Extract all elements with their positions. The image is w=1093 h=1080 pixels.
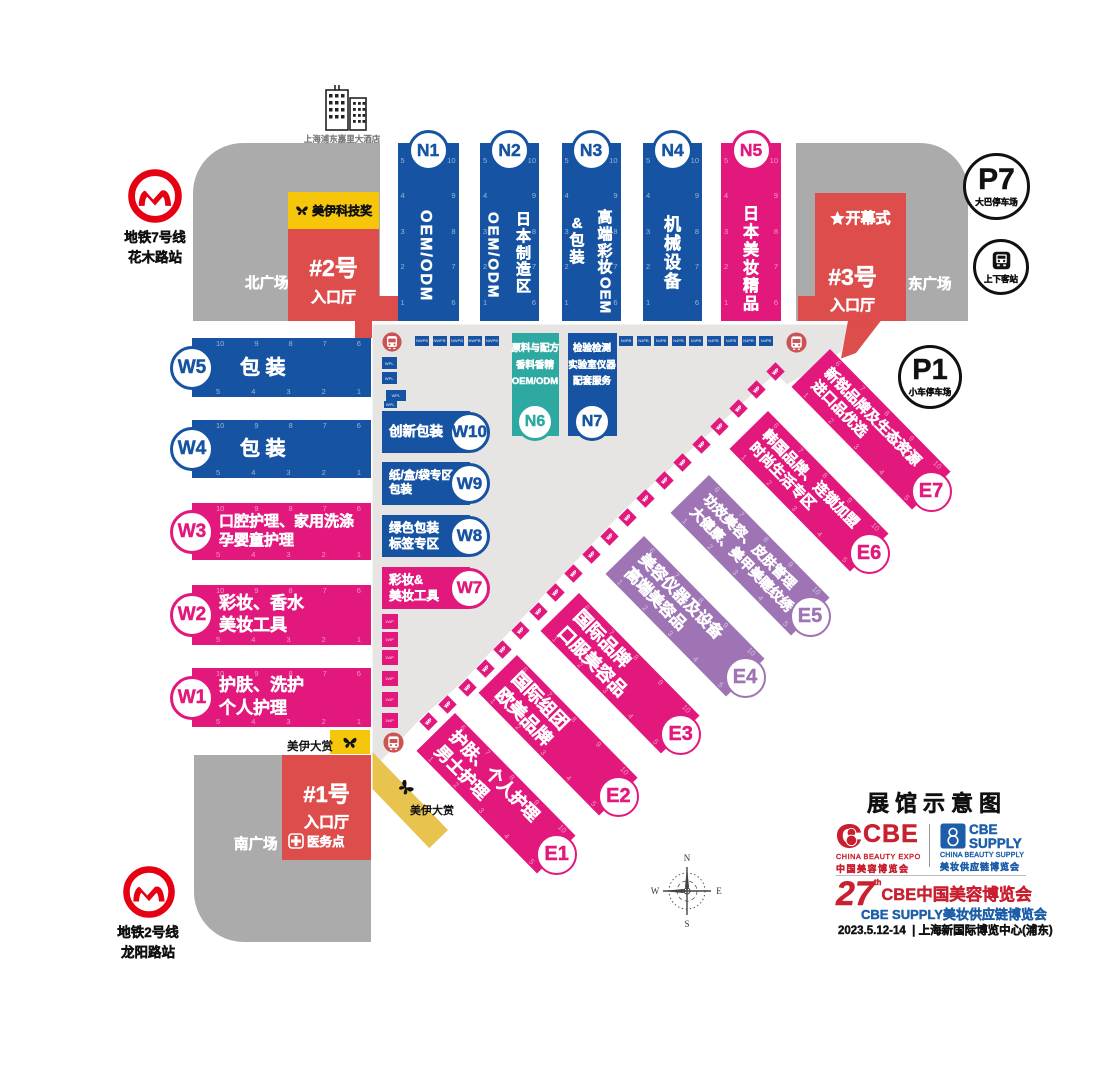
svg-text:N: N (684, 853, 691, 863)
svg-text:E: E (716, 886, 722, 896)
svg-text:W: W (651, 886, 660, 896)
svg-text:S: S (684, 919, 689, 929)
